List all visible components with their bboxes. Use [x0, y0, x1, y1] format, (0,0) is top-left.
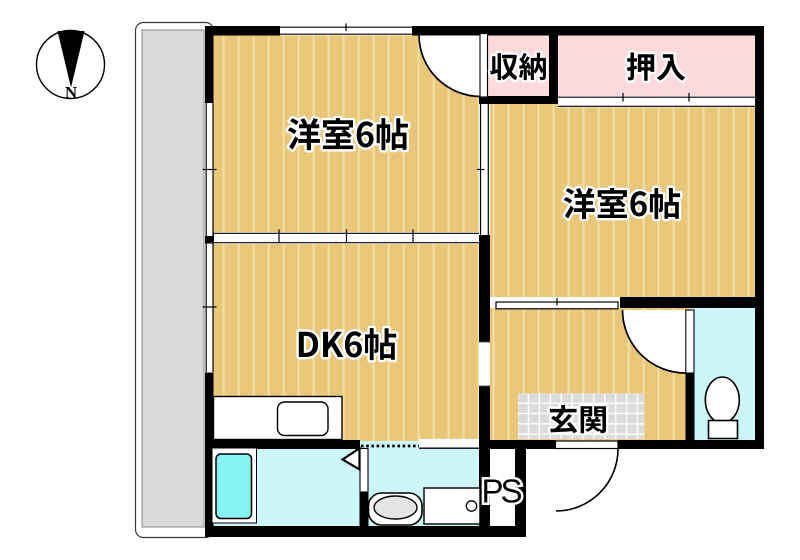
svg-text:N: N: [65, 83, 78, 102]
svg-text:PS: PS: [482, 473, 522, 510]
